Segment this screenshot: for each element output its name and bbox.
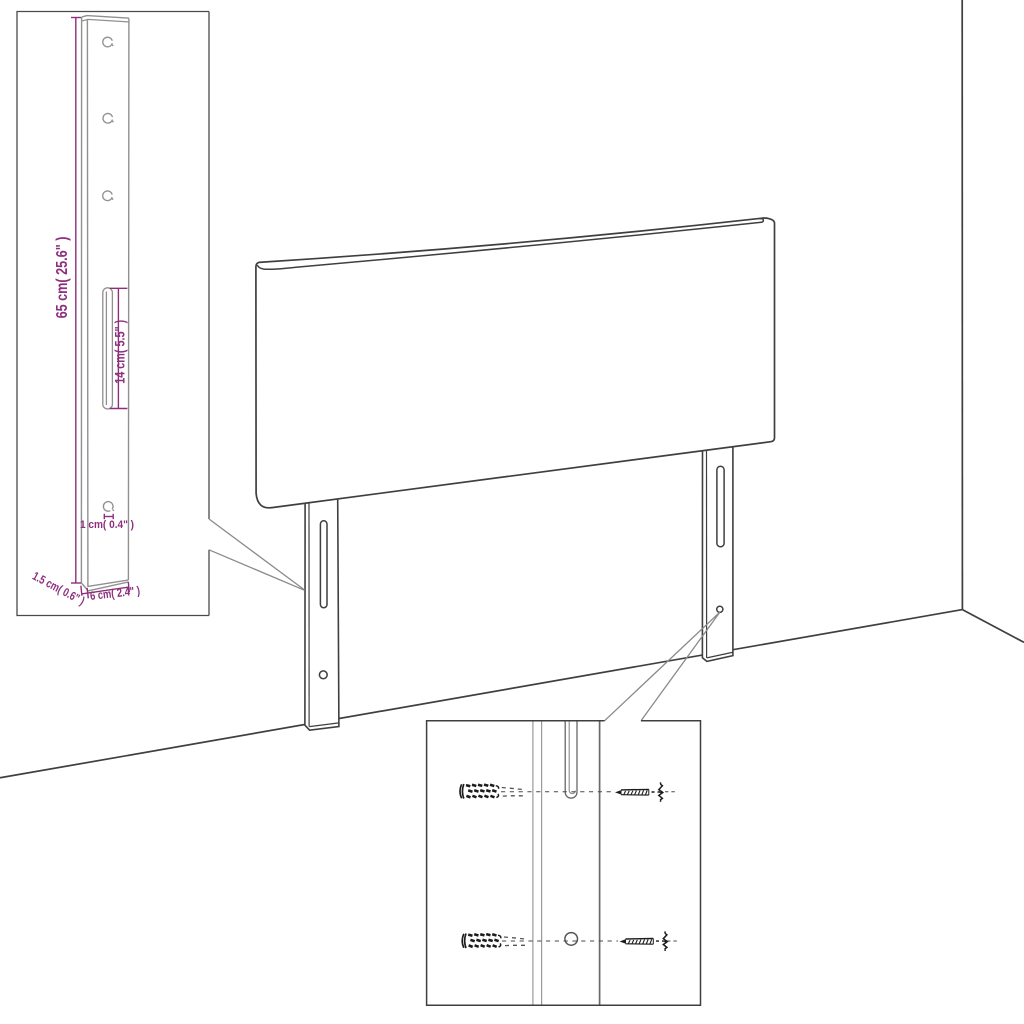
svg-text:1 cm( 0.4" ): 1 cm( 0.4" ) [80, 519, 134, 532]
svg-text:14 cm( 5.5" ): 14 cm( 5.5" ) [112, 320, 127, 384]
svg-text:65 cm( 25.6" ): 65 cm( 25.6" ) [54, 236, 72, 318]
